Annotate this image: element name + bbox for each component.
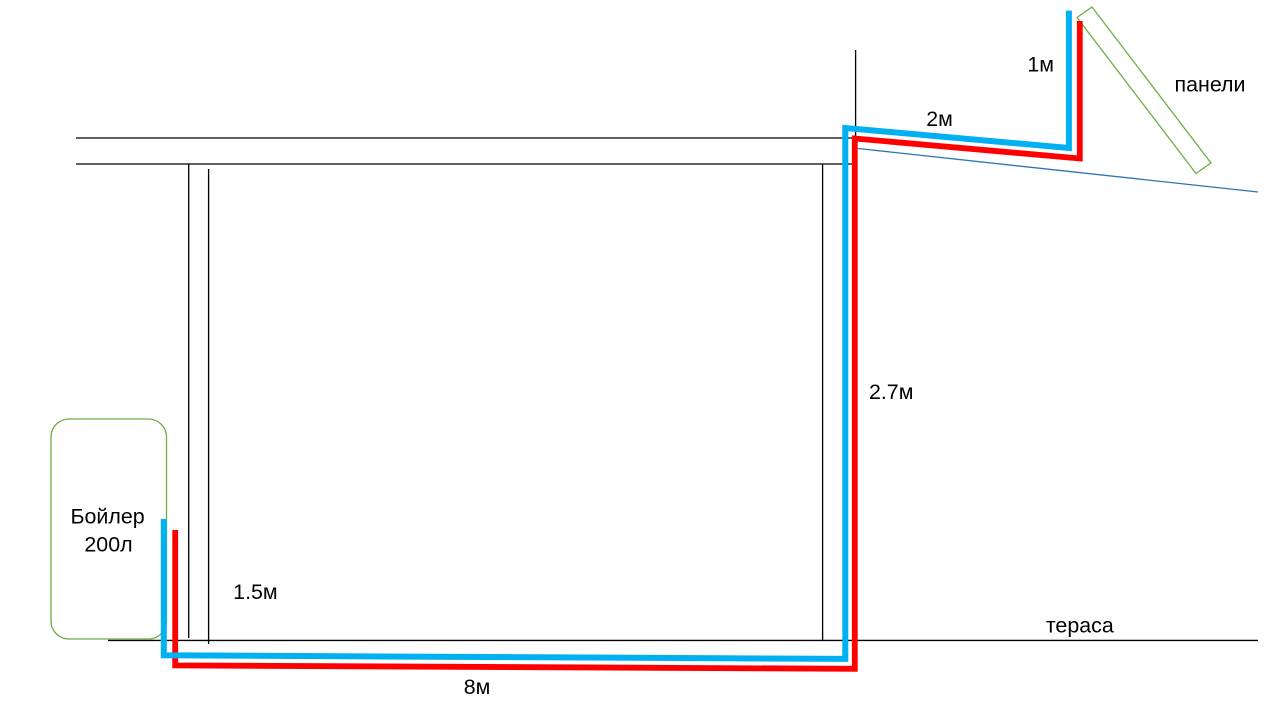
svg-text:2.7м: 2.7м <box>869 380 913 404</box>
svg-text:панели: панели <box>1175 73 1246 97</box>
svg-text:Бойлер: Бойлер <box>71 505 145 529</box>
svg-text:тераса: тераса <box>1046 614 1114 638</box>
svg-text:8м: 8м <box>464 675 491 699</box>
svg-text:1м: 1м <box>1027 53 1054 77</box>
svg-text:2м: 2м <box>926 107 953 131</box>
svg-text:200л: 200л <box>84 533 132 557</box>
svg-text:1.5м: 1.5м <box>233 580 277 604</box>
